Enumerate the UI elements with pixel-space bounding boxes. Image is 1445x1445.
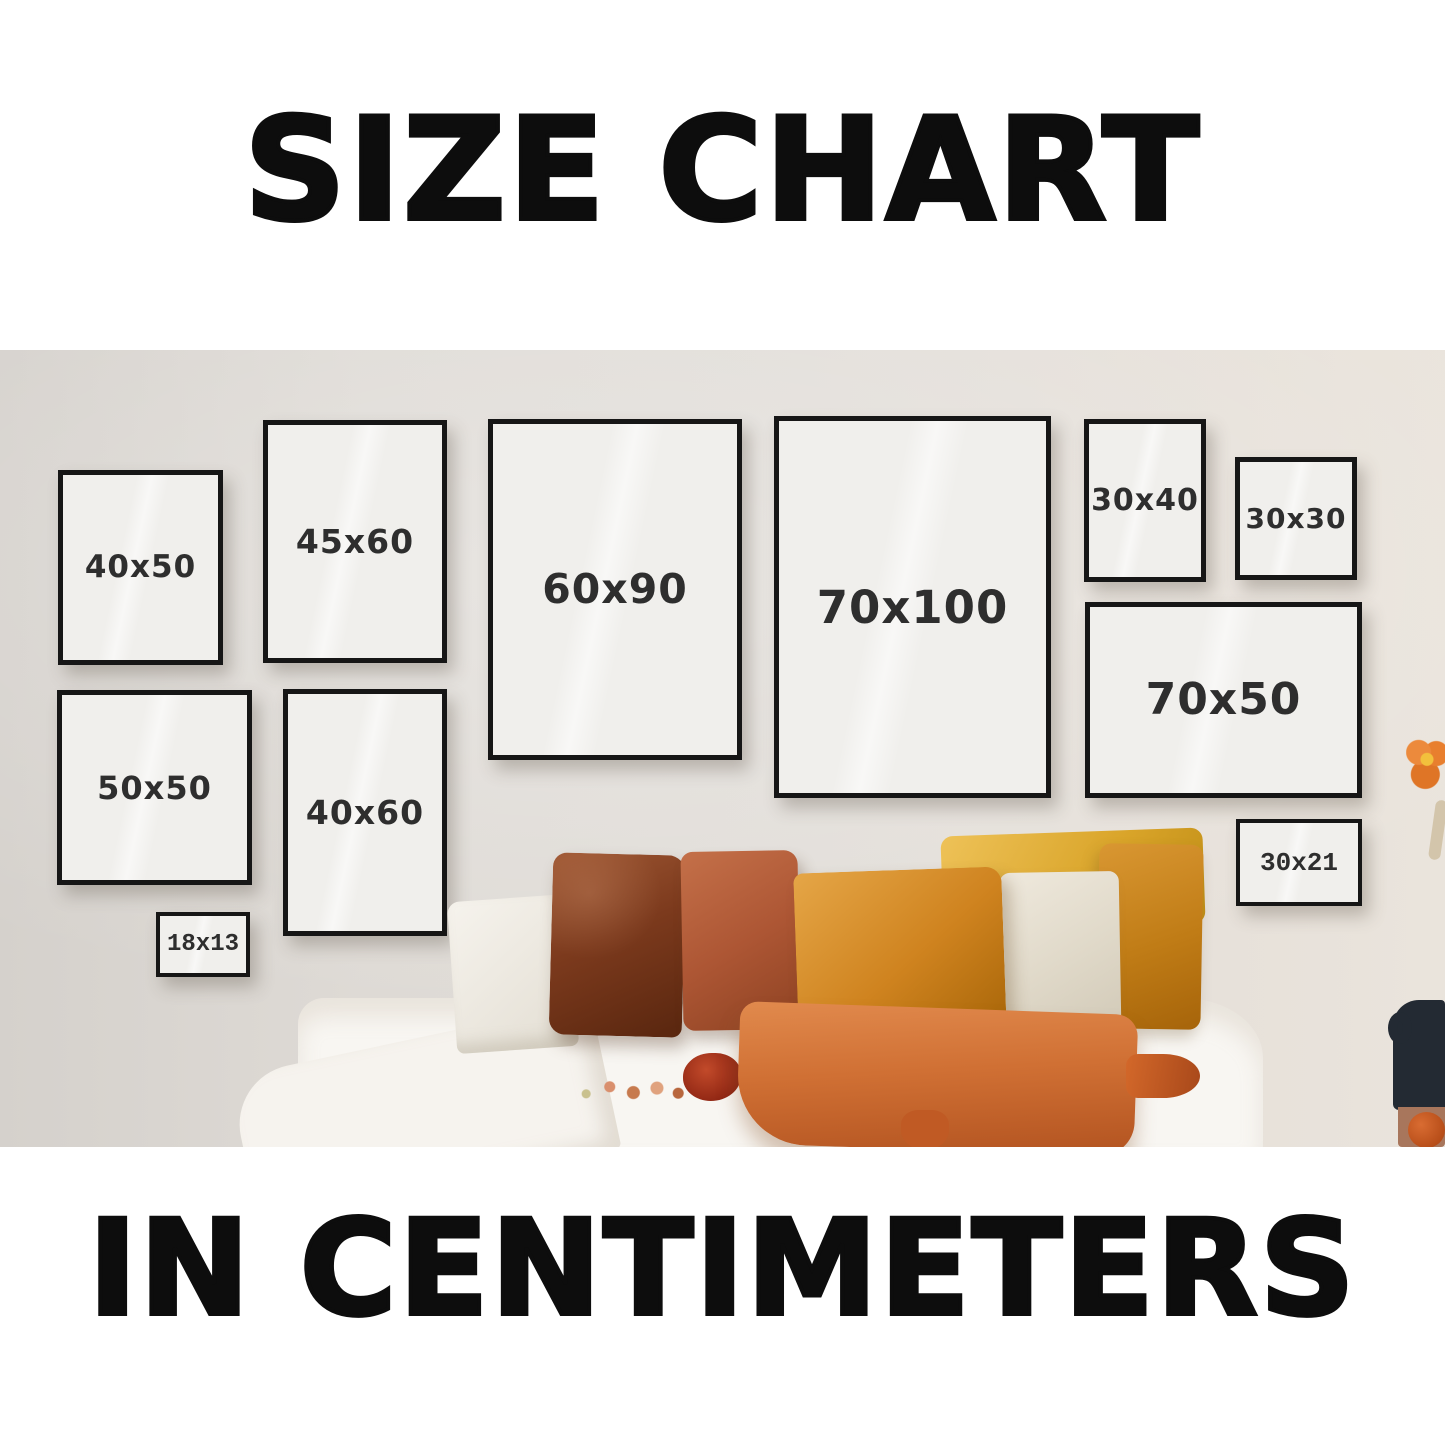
size-frame-30x40: 30x40 bbox=[1084, 419, 1206, 582]
vase-base bbox=[1398, 1107, 1445, 1147]
size-label-30x21: 30x21 bbox=[1260, 850, 1338, 876]
pillow-yellow-back bbox=[940, 827, 1205, 932]
dried-stem bbox=[1428, 799, 1445, 860]
size-frame-45x60: 45x60 bbox=[263, 420, 447, 663]
size-label-18x13: 18x13 bbox=[167, 933, 239, 957]
size-label-70x100: 70x100 bbox=[817, 585, 1009, 630]
size-label-30x40: 30x40 bbox=[1091, 486, 1199, 516]
red-pompom-tassel bbox=[683, 1053, 741, 1101]
orange-fruit bbox=[1408, 1112, 1445, 1147]
pillow-white-left bbox=[447, 894, 579, 1054]
pillow-dark-rust bbox=[549, 852, 687, 1037]
orange-tassel-right bbox=[1126, 1054, 1200, 1098]
bedroom-photo: 40x50 45x60 60x90 70x100 30x40 30x30 50x… bbox=[0, 350, 1445, 1147]
pillow-cream bbox=[1000, 871, 1122, 1029]
dark-vase bbox=[1393, 1000, 1445, 1110]
bed-mattress bbox=[298, 998, 1263, 1147]
size-label-45x60: 45x60 bbox=[296, 525, 414, 558]
pillow-front-orange bbox=[736, 1001, 1139, 1147]
size-frame-40x50: 40x50 bbox=[58, 470, 223, 665]
size-frame-30x30: 30x30 bbox=[1235, 457, 1357, 580]
pillow-terracotta bbox=[680, 850, 800, 1031]
size-frame-40x60: 40x60 bbox=[283, 689, 447, 936]
pillow-amber-right bbox=[1096, 843, 1203, 1030]
dried-flower-sprig bbox=[572, 1074, 690, 1106]
white-throw-blanket bbox=[228, 1001, 621, 1147]
orange-tassel-bottom bbox=[901, 1110, 949, 1147]
vase-handle bbox=[1388, 1012, 1412, 1044]
size-frame-70x50: 70x50 bbox=[1085, 602, 1362, 798]
orange-flower bbox=[1406, 735, 1445, 793]
pillow-amber-velvet bbox=[793, 866, 1007, 1039]
size-label-50x50: 50x50 bbox=[97, 772, 212, 804]
size-label-40x60: 40x60 bbox=[306, 796, 424, 829]
size-frame-70x100: 70x100 bbox=[774, 416, 1051, 798]
size-label-60x90: 60x90 bbox=[542, 569, 688, 610]
size-frame-50x50: 50x50 bbox=[57, 690, 252, 885]
size-label-30x30: 30x30 bbox=[1246, 505, 1347, 533]
size-frame-30x21: 30x21 bbox=[1236, 819, 1362, 906]
size-frame-60x90: 60x90 bbox=[488, 419, 742, 760]
page-title: SIZE CHART bbox=[244, 100, 1201, 242]
header-band: SIZE CHART bbox=[0, 0, 1445, 350]
size-label-40x50: 40x50 bbox=[85, 552, 196, 583]
size-label-70x50: 70x50 bbox=[1146, 678, 1302, 722]
size-chart-graphic: SIZE CHART 40x50 45x60 60x90 70x100 30x4… bbox=[0, 0, 1445, 1445]
footer-title: IN CENTIMETERS bbox=[88, 1203, 1357, 1335]
footer-band: IN CENTIMETERS bbox=[0, 1147, 1445, 1445]
size-frame-18x13: 18x13 bbox=[156, 912, 250, 977]
